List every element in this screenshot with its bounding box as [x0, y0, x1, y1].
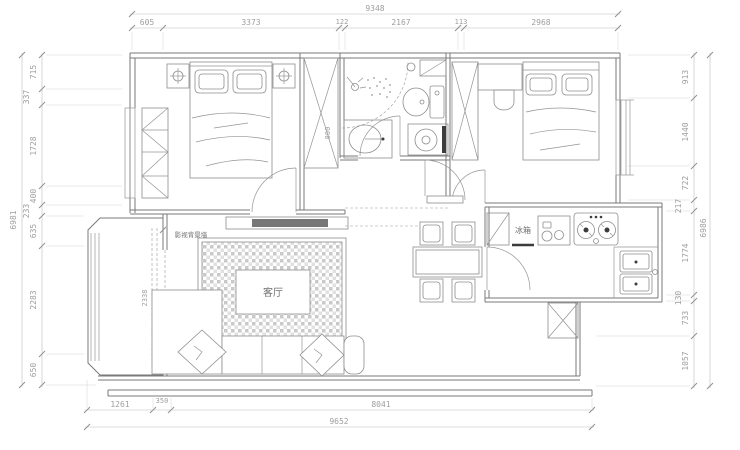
double-bed — [190, 62, 272, 178]
dim-label: 1774 — [681, 243, 690, 262]
bathroom — [342, 60, 448, 158]
dim-label: 122 — [336, 18, 349, 26]
dim-label: 130 — [674, 291, 683, 306]
chair — [420, 279, 443, 302]
dim-label: 217 — [674, 199, 683, 214]
dim-label: 337 — [22, 90, 31, 105]
balcony-window — [91, 233, 99, 361]
dim-label: 2968 — [531, 18, 550, 27]
washing-machine — [408, 124, 448, 155]
cabinet-crossed — [487, 213, 509, 245]
dim-label: 9348 — [365, 4, 384, 13]
dim-label: 1728 — [29, 136, 38, 155]
wardrobe: 800 — [304, 58, 338, 168]
dim-label: 733 — [681, 311, 690, 326]
door-bathroom — [360, 116, 400, 156]
dimension-chain-bottom: 9652 1261 350 8041 — [84, 380, 595, 430]
dim-label: 635 — [29, 224, 38, 239]
dim-label: 1440 — [681, 122, 690, 141]
entry-door — [425, 160, 465, 203]
tv-cabinet — [226, 217, 348, 229]
dim-label: 722 — [681, 176, 690, 191]
dim-label: 605 — [140, 18, 155, 27]
bedroom-master: 800 — [125, 58, 338, 212]
shower — [342, 62, 408, 128]
dim-label: 650 — [29, 363, 38, 378]
door-bedroom-master — [252, 168, 296, 212]
kitchen: 冰箱 — [487, 213, 658, 338]
dim-label: 913 — [681, 70, 690, 85]
dim-label: 715 — [29, 65, 38, 80]
flue-box — [548, 303, 578, 338]
desk — [478, 64, 522, 110]
balcony-opening-dim: 2338 — [141, 290, 149, 307]
dim-label: 233 — [22, 204, 31, 219]
window-left — [125, 108, 135, 198]
dim-label: 350 — [156, 397, 169, 405]
dimension-chain-left: 6981 715 337 1728 400 233 635 2283 650 — [9, 52, 122, 388]
washbasin — [344, 120, 392, 158]
dim-label: 6986 — [699, 218, 708, 237]
fridge-label: 冰箱 — [515, 225, 531, 235]
dimension-chain-top: 9348 605 3373 122 2167 113 2968 — [129, 4, 621, 50]
bedroom-second — [452, 62, 634, 203]
double-bed — [523, 62, 599, 160]
dim-label: 113 — [455, 18, 468, 26]
door-kitchen — [487, 247, 530, 290]
dim-label: 2167 — [391, 18, 410, 27]
nightstand — [273, 64, 295, 88]
gas-stove — [574, 213, 618, 245]
nightstand — [167, 64, 189, 88]
dim-label: 400 — [29, 189, 38, 204]
dim-label: 3373 — [241, 18, 260, 27]
counter-appliances — [538, 216, 570, 245]
living-room: 影视背景墙 客厅 — [152, 217, 364, 376]
chair — [452, 279, 475, 302]
floor-plan-svg: 9348 605 3373 122 2167 113 2968 6981 715… — [0, 0, 740, 450]
toilet — [403, 86, 444, 118]
flue-column — [452, 62, 478, 160]
dim-label: 8041 — [371, 400, 390, 409]
dim-label: 1261 — [110, 400, 129, 409]
dim-label: 6981 — [9, 210, 18, 229]
shelf — [407, 60, 446, 76]
dim-label: 1057 — [681, 351, 690, 370]
dimension-chain-right: 6986 913 1440 722 217 1774 130 733 1057 — [596, 52, 713, 389]
sink-counter — [614, 247, 658, 298]
living-room-label: 客厅 — [263, 286, 283, 299]
dim-label: 2283 — [29, 290, 38, 309]
wardrobe-depth-dim: 800 — [324, 127, 332, 140]
chair — [452, 222, 475, 245]
window-right — [616, 100, 634, 175]
dim-label: 9652 — [329, 417, 348, 426]
radiator-cabinet — [142, 108, 168, 198]
chair — [420, 222, 443, 245]
dining-area — [413, 222, 482, 302]
floor-plan-page: 9348 605 3373 122 2167 113 2968 6981 715… — [0, 0, 740, 450]
